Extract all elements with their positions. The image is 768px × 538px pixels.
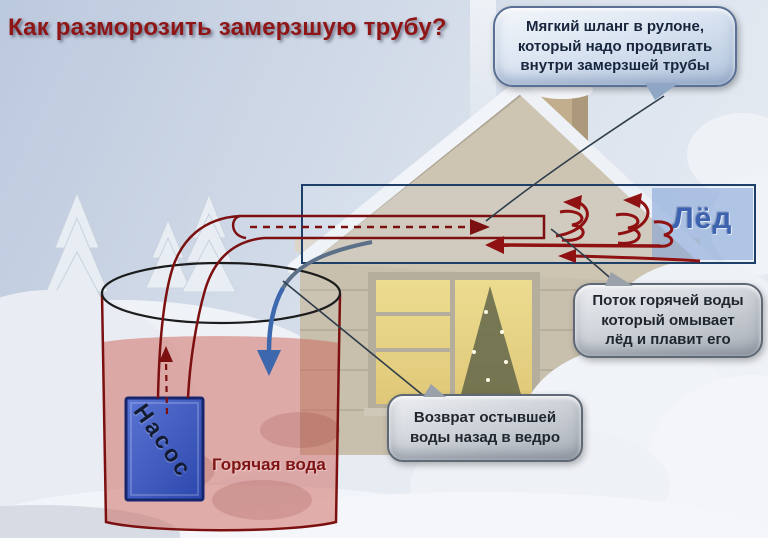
backflow-arrow-upper [502,245,660,246]
callout-text-line: Возврат остывшей [397,408,573,428]
callout-tail [645,83,679,100]
bucket-rim [102,263,340,323]
infographic-canvas: Как разморозить замерзшую трубу? Лёд Нас… [0,0,768,538]
hot-water-label: Горячая вода [212,455,326,475]
callout-text-line: воды назад в ведро [397,428,573,448]
callout-hot-flow: Поток горячей воды который омывает лёд и… [573,283,763,358]
callout-text-line: Поток горячей воды [583,291,753,311]
callout-soft-hose: Мягкий шланг в рулоне, который надо прод… [493,6,737,87]
callout-text-line: который надо продвигать [503,37,727,57]
callout-text-line: Мягкий шланг в рулоне, [503,17,727,37]
hose-end-cap [233,216,246,238]
callout-text-line: лёд и плавит его [583,330,753,350]
callout-text-line: который омывает [583,311,753,331]
callout-return-water: Возврат остывшей воды назад в ведро [387,394,583,462]
callout-tail [605,272,633,286]
ice-label: Лёд [652,202,753,236]
callout-tail [423,384,446,397]
callout-text-line: внутри замерзшей трубы [503,56,727,76]
page-title: Как разморозить замерзшую трубу? [8,14,478,42]
